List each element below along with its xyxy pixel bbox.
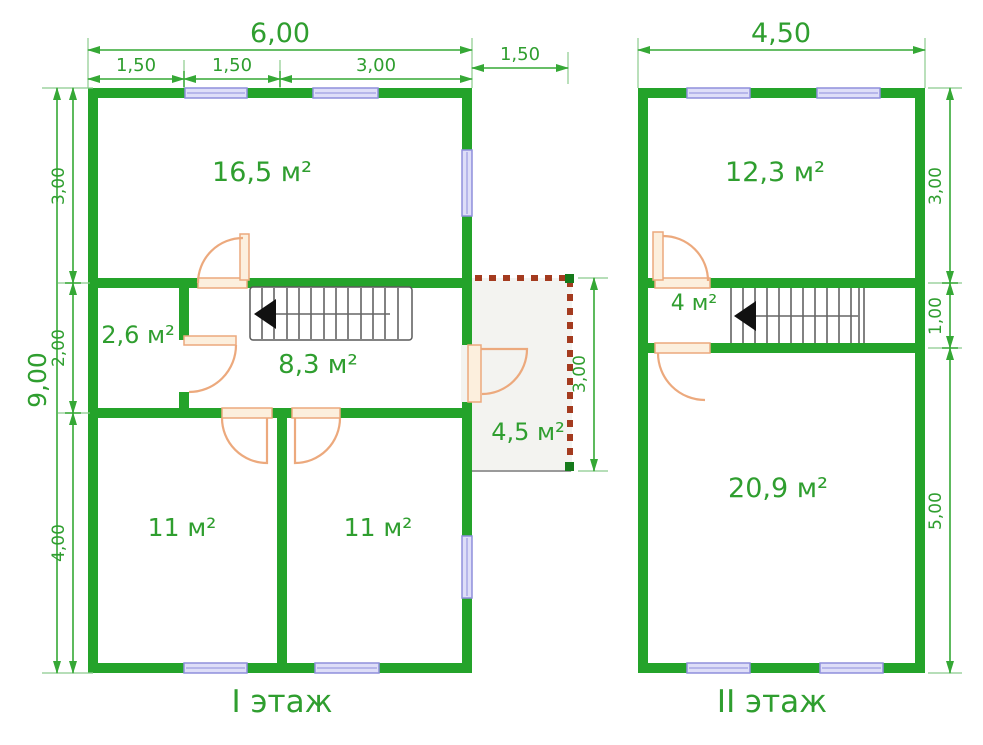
window	[462, 150, 472, 216]
door	[655, 343, 710, 400]
porch-post-bottom	[565, 462, 574, 471]
stairs-floor2	[728, 288, 868, 343]
room-label-bedroom-right: 11 м²	[344, 513, 413, 542]
door	[198, 234, 249, 288]
dim-width-total-f1: 6,00	[250, 18, 310, 49]
dim-porch-width: 1,50	[500, 44, 540, 65]
door	[653, 232, 710, 288]
window	[820, 663, 883, 673]
dim-top-seg3: 3,00	[356, 55, 396, 76]
floor1-plan: 16,5 м² 2,6 м² 8,3 м² 11 м² 11 м² 4,5 м²…	[23, 18, 608, 720]
floor1-caption: I этаж	[232, 684, 333, 720]
room-label-landing: 4 м²	[671, 291, 717, 316]
room-label-main: 20,9 м²	[728, 473, 828, 504]
room-label-bedroom-f2: 12,3 м²	[725, 157, 825, 188]
porch-post-top	[565, 274, 574, 283]
floor1-dimensions-left: 9,00 3,00 2,00 4,00	[23, 88, 93, 673]
dim-height-total-f1: 9,00	[23, 352, 52, 408]
dim-top-seg2: 1,50	[212, 55, 252, 76]
dim-right-seg3: 5,00	[926, 492, 946, 530]
window	[462, 536, 472, 598]
room-label-bedroom-left: 11 м²	[148, 513, 217, 542]
window	[184, 663, 247, 673]
floor2-plan: 12,3 м² 4 м² 20,9 м² II этаж 4,50 3,00 1…	[638, 18, 962, 720]
floor2-dimensions-right: 3,00 1,00 5,00	[926, 88, 962, 673]
room-label-living: 16,5 м²	[212, 157, 312, 188]
window	[817, 88, 880, 98]
door	[292, 408, 340, 463]
floor2-doors	[653, 232, 710, 400]
room-label-porch: 4,5 м²	[491, 418, 565, 446]
room-label-storage: 2,6 м²	[101, 321, 175, 349]
room-label-hall: 8,3 м²	[278, 350, 358, 380]
floor-plan-page: 16,5 м² 2,6 м² 8,3 м² 11 м² 11 м² 4,5 м²…	[0, 0, 983, 745]
window	[185, 88, 247, 98]
dim-width-total-f2: 4,50	[751, 18, 811, 49]
dim-right-seg2: 1,00	[926, 297, 946, 335]
door	[222, 408, 272, 463]
window	[687, 88, 750, 98]
floor2-caption: II этаж	[717, 684, 827, 720]
window	[687, 663, 750, 673]
dim-left-seg2: 2,00	[49, 329, 69, 367]
door	[184, 336, 236, 392]
floor1-dimensions-top: 6,00 1,50 1,50 3,00 1,50	[88, 18, 568, 88]
window	[313, 88, 378, 98]
dim-right-seg1: 3,00	[926, 167, 946, 205]
dim-top-seg1: 1,50	[116, 55, 156, 76]
stairs-floor1	[250, 287, 412, 340]
porch-dimension: 3,00	[570, 278, 608, 471]
floor2-dimensions-top: 4,50	[638, 18, 925, 88]
dim-left-seg3: 4,00	[49, 524, 69, 562]
window	[315, 663, 379, 673]
dim-porch-height: 3,00	[570, 355, 590, 393]
dim-left-seg1: 3,00	[49, 167, 69, 205]
